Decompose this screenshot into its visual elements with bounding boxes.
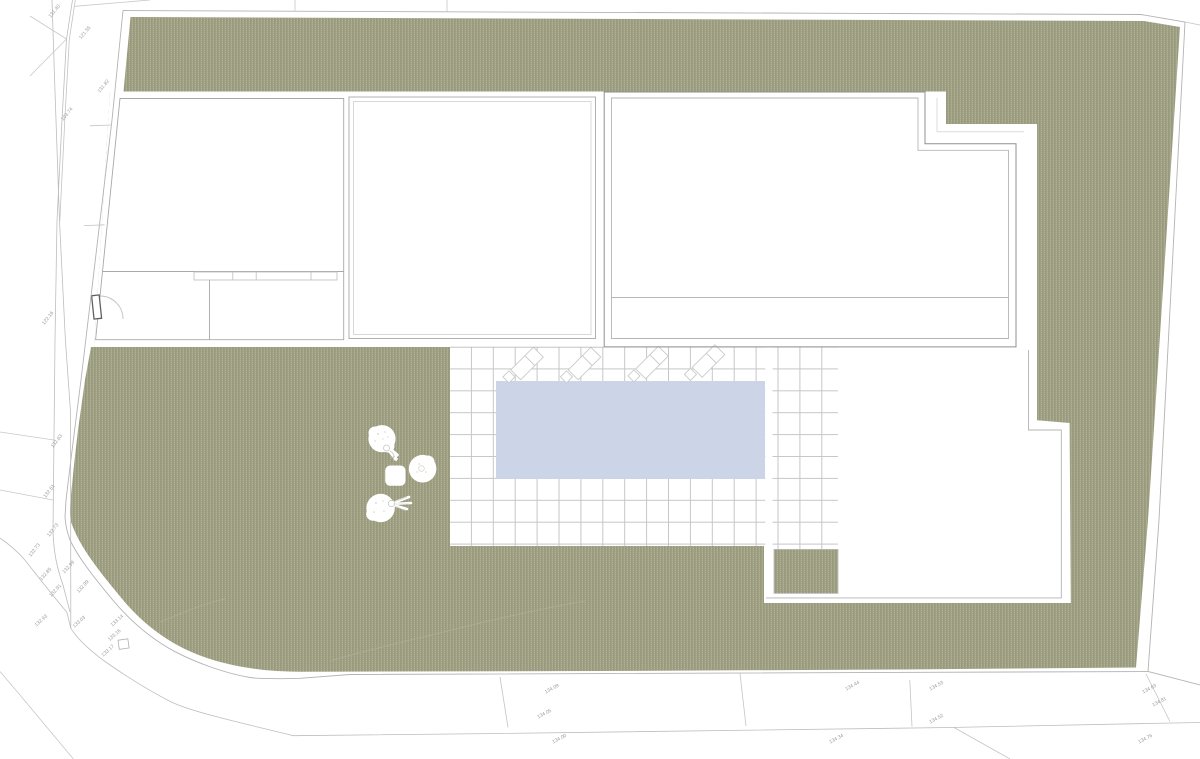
svg-text:132.93: 132.93 <box>34 613 50 628</box>
svg-text:134.81: 134.81 <box>1151 696 1168 709</box>
svg-text:133.14: 133.14 <box>110 613 126 628</box>
svg-text:132.73: 132.73 <box>28 542 42 558</box>
svg-text:134.00: 134.00 <box>551 733 568 746</box>
svg-text:131.40: 131.40 <box>48 3 63 19</box>
svg-text:134.05: 134.05 <box>536 708 553 721</box>
svg-text:132.91: 132.91 <box>48 583 63 599</box>
svg-text:134.76: 134.76 <box>1137 733 1154 746</box>
svg-text:134.44: 134.44 <box>844 680 861 693</box>
svg-text:134.09: 134.09 <box>544 683 561 696</box>
svg-text:103.74: 103.74 <box>60 106 75 122</box>
svg-text:132.61: 132.61 <box>42 483 56 499</box>
svg-text:134.52: 134.52 <box>928 713 945 726</box>
svg-text:132.99: 132.99 <box>61 559 76 575</box>
svg-text:132.85: 132.85 <box>39 566 54 582</box>
svg-text:132.63: 132.63 <box>50 433 64 449</box>
svg-text:134.53: 134.53 <box>928 680 945 693</box>
svg-text:122.16: 122.16 <box>41 310 55 326</box>
svg-text:132.99: 132.99 <box>76 579 91 595</box>
svg-text:121.55: 121.55 <box>78 25 93 41</box>
svg-text:131.82: 131.82 <box>97 78 112 94</box>
svg-text:133.17: 133.17 <box>100 644 116 659</box>
svg-text:133.03: 133.03 <box>72 615 88 630</box>
svg-text:134.34: 134.34 <box>828 733 845 746</box>
